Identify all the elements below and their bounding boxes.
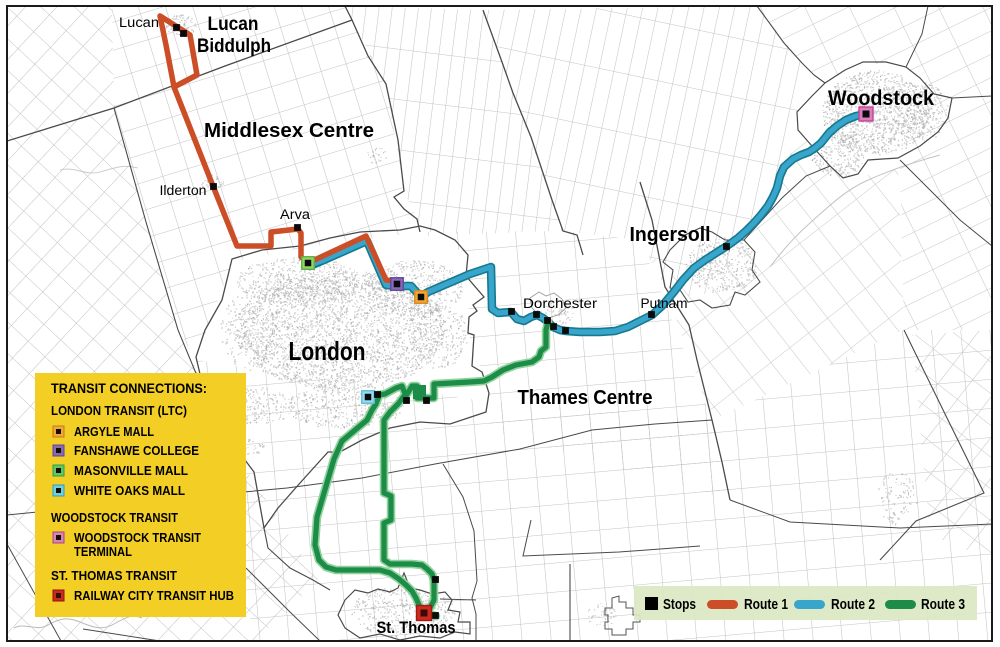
svg-text:Lucan: Lucan: [208, 14, 259, 35]
svg-text:RAILWAY CITY TRANSIT HUB: RAILWAY CITY TRANSIT HUB: [74, 588, 234, 603]
svg-text:Lucan: Lucan: [119, 15, 159, 30]
svg-text:Route 3: Route 3: [921, 596, 965, 613]
svg-text:Middlesex Centre: Middlesex Centre: [204, 120, 374, 142]
svg-text:Ilderton: Ilderton: [160, 183, 207, 198]
svg-text:Putnam: Putnam: [641, 296, 688, 311]
svg-text:Thames Centre: Thames Centre: [518, 387, 653, 409]
svg-text:Route 1: Route 1: [744, 596, 788, 613]
svg-text:FANSHAWE COLLEGE: FANSHAWE COLLEGE: [74, 443, 199, 458]
svg-text:WOODSTOCK TRANSIT: WOODSTOCK TRANSIT: [74, 530, 201, 545]
svg-text:Dorchester: Dorchester: [523, 296, 598, 311]
svg-text:Woodstock: Woodstock: [828, 87, 934, 110]
svg-text:Biddulph: Biddulph: [197, 36, 271, 57]
svg-text:WOODSTOCK TRANSIT: WOODSTOCK TRANSIT: [51, 510, 178, 525]
svg-text:MASONVILLE MALL: MASONVILLE MALL: [74, 463, 188, 478]
svg-text:TERMINAL: TERMINAL: [74, 544, 132, 559]
svg-text:ARGYLE MALL: ARGYLE MALL: [74, 424, 154, 439]
svg-text:Route 2: Route 2: [831, 596, 875, 613]
svg-text:WHITE OAKS MALL: WHITE OAKS MALL: [74, 483, 185, 498]
svg-text:London: London: [289, 336, 366, 366]
svg-text:TRANSIT CONNECTIONS:: TRANSIT CONNECTIONS:: [51, 380, 207, 396]
svg-text:St. Thomas: St. Thomas: [377, 618, 456, 637]
svg-text:Arva: Arva: [280, 207, 311, 222]
svg-text:Ingersoll: Ingersoll: [630, 224, 711, 246]
svg-text:ST. THOMAS TRANSIT: ST. THOMAS TRANSIT: [51, 568, 177, 583]
svg-text:Stops: Stops: [663, 596, 696, 613]
svg-text:LONDON TRANSIT (LTC): LONDON TRANSIT (LTC): [51, 403, 187, 418]
